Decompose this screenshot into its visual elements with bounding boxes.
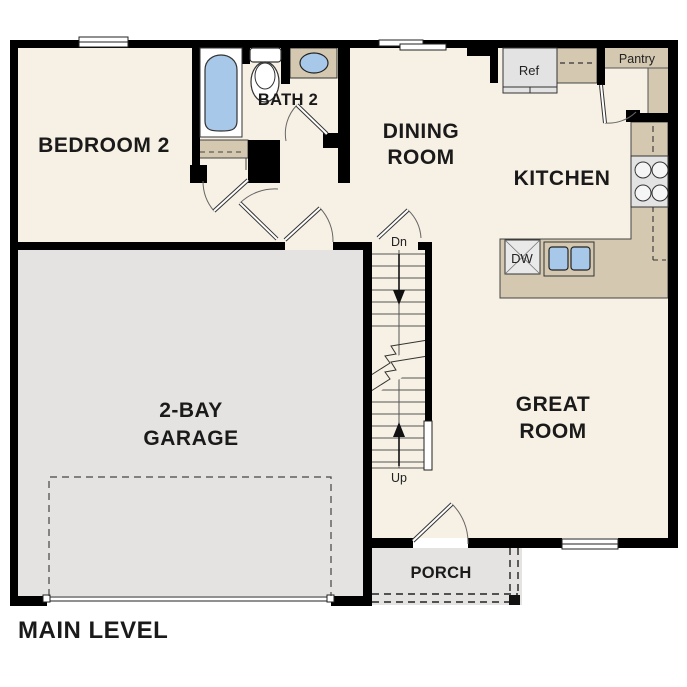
great-room-label-line1: GREAT: [516, 393, 590, 416]
kitchen-cabinet: [557, 48, 597, 83]
garage-door: [43, 595, 334, 606]
plan-title: MAIN LEVEL: [18, 617, 168, 644]
refrigerator-label: Ref: [519, 63, 540, 78]
floor-plan: BEDROOM 2 BATH 2 DINING ROOM KITCHEN GRE…: [0, 0, 687, 687]
bedroom2-window: [79, 37, 128, 47]
pantry-label: Pantry: [619, 52, 656, 66]
stairs-down-label: Dn: [391, 235, 407, 249]
bathtub: [200, 48, 242, 137]
floor-plan-svg: BEDROOM 2 BATH 2 DINING ROOM KITCHEN GRE…: [0, 0, 687, 687]
kitchen-sink: [544, 242, 594, 276]
dishwasher-label: DW: [511, 251, 533, 266]
stairs-up-label: Up: [391, 471, 407, 485]
dining-label-line2: ROOM: [387, 146, 454, 169]
bath2-label: BATH 2: [258, 91, 318, 109]
garage-label-line1: 2-BAY: [159, 399, 223, 422]
stove: [631, 156, 668, 207]
bedroom2-label: BEDROOM 2: [38, 134, 170, 157]
bath-sink-vanity: [290, 48, 337, 78]
kitchen-label: KITCHEN: [514, 167, 611, 190]
dining-label-line1: DINING: [383, 120, 460, 143]
porch-post: [509, 595, 520, 605]
garage-label-line2: GARAGE: [143, 427, 238, 450]
stair-railing: [424, 421, 432, 470]
great-room-window: [562, 539, 618, 549]
great-room-label-line2: ROOM: [519, 420, 586, 443]
porch-label: PORCH: [410, 564, 471, 582]
garage-floor: [18, 250, 363, 596]
